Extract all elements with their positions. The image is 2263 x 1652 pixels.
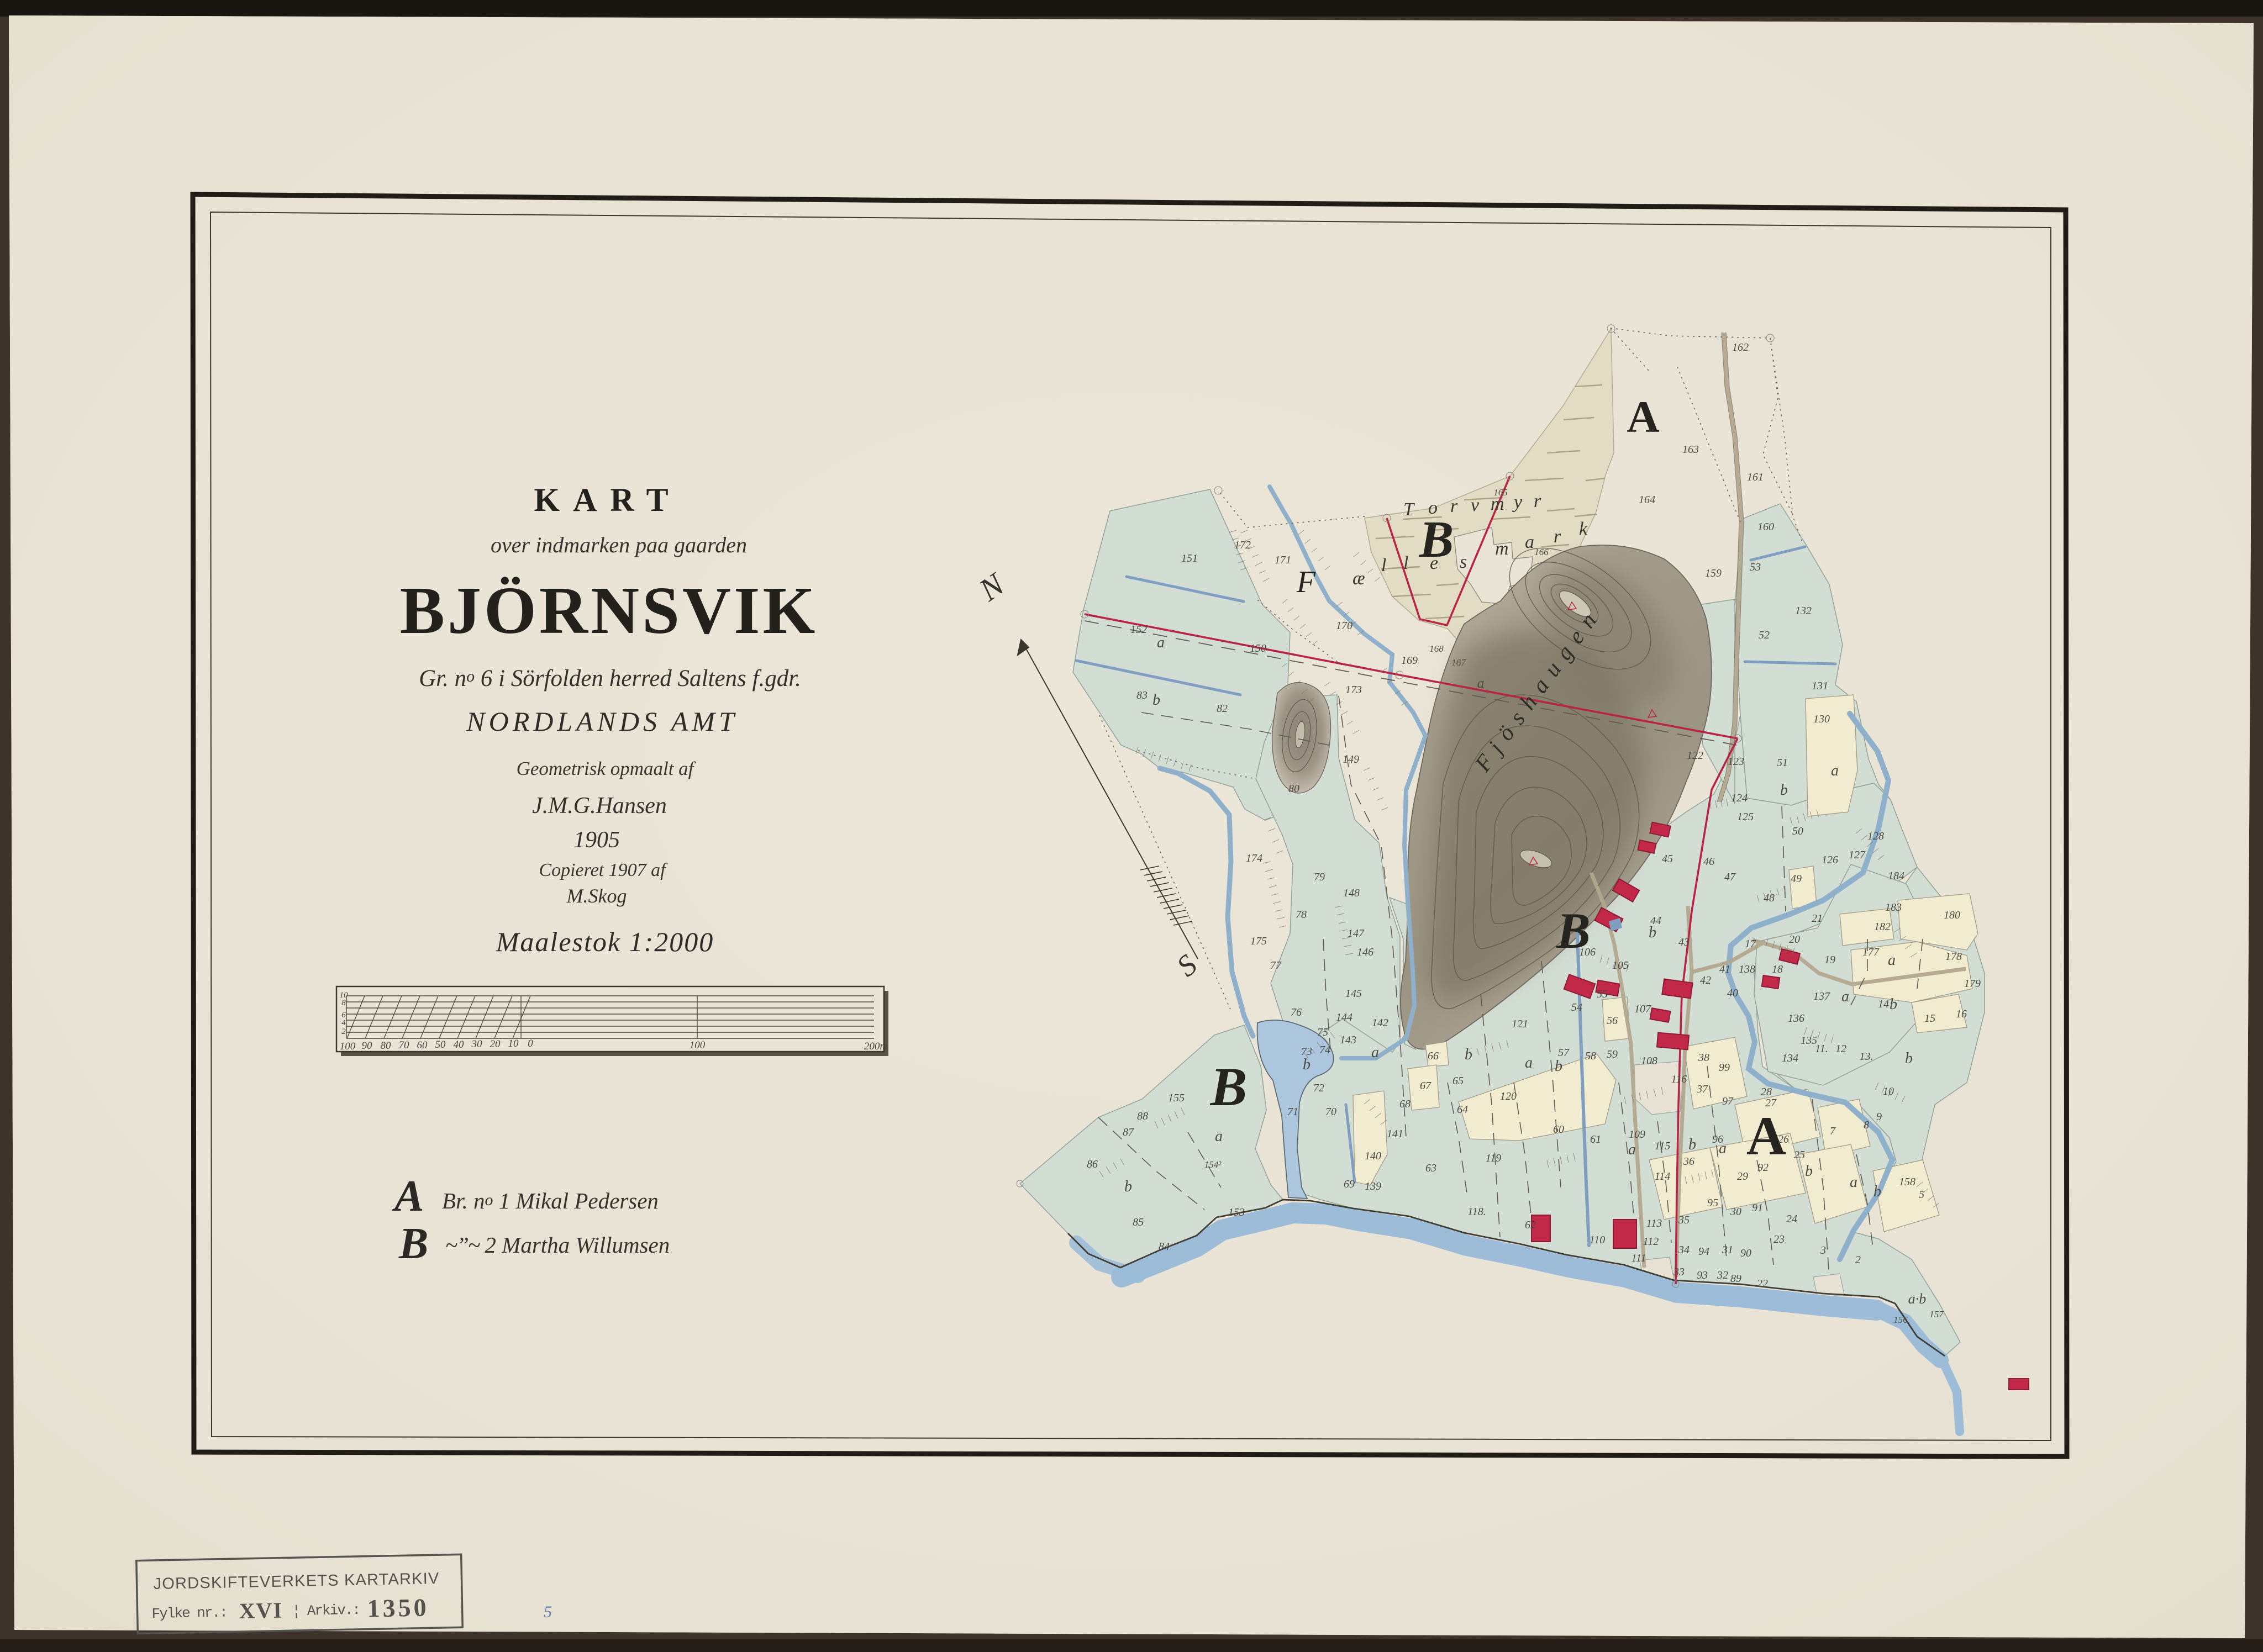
svg-text:50: 50 <box>435 1039 446 1051</box>
svg-text:128: 128 <box>1867 830 1884 842</box>
svg-text:132: 132 <box>1795 605 1812 617</box>
svg-text:59: 59 <box>1607 1048 1618 1060</box>
svg-text:33: 33 <box>1673 1266 1685 1278</box>
svg-text:72: 72 <box>1313 1082 1324 1094</box>
svg-text:99: 99 <box>1719 1062 1730 1074</box>
svg-text:21: 21 <box>1812 912 1823 925</box>
svg-text:172: 172 <box>1234 539 1251 551</box>
svg-text:130: 130 <box>1813 713 1830 725</box>
svg-text:34: 34 <box>1678 1244 1690 1256</box>
svg-text:200m: 200m <box>864 1041 887 1052</box>
svg-text:62: 62 <box>1525 1219 1536 1231</box>
svg-text:40: 40 <box>1727 987 1738 999</box>
svg-text:F: F <box>1296 565 1316 599</box>
svg-text:NORDLANDS AMT: NORDLANDS AMT <box>466 706 738 737</box>
svg-text:a: a <box>1157 634 1165 651</box>
svg-text:100: 100 <box>340 1041 356 1052</box>
svg-text:T: T <box>1403 499 1415 520</box>
svg-text:67: 67 <box>1420 1080 1432 1092</box>
svg-text:163: 163 <box>1682 444 1699 456</box>
svg-text:a: a <box>1477 675 1485 691</box>
svg-text:a: a <box>1525 532 1534 552</box>
svg-text:b: b <box>1303 1056 1311 1073</box>
svg-text:10: 10 <box>508 1038 519 1049</box>
svg-text:146: 146 <box>1357 946 1373 958</box>
svg-text:95: 95 <box>1707 1197 1718 1209</box>
svg-text:8: 8 <box>341 999 346 1007</box>
svg-text:b: b <box>1905 1050 1913 1067</box>
svg-text:XVI: XVI <box>239 1598 283 1624</box>
svg-text:94: 94 <box>1698 1245 1709 1258</box>
svg-text:m: m <box>1495 539 1509 559</box>
svg-text:a: a <box>1850 1174 1857 1191</box>
svg-text:161: 161 <box>1747 471 1764 483</box>
svg-text:a: a <box>1841 988 1849 1005</box>
svg-text:20: 20 <box>490 1038 501 1050</box>
svg-text:30: 30 <box>471 1038 483 1050</box>
svg-text:119: 119 <box>1486 1152 1502 1164</box>
svg-text:17: 17 <box>1745 938 1756 950</box>
svg-text:b: b <box>1555 1058 1562 1075</box>
svg-text:131: 131 <box>1812 680 1828 692</box>
svg-text:r: r <box>1554 526 1561 547</box>
svg-text:b: b <box>1805 1163 1813 1180</box>
svg-text:121: 121 <box>1512 1018 1528 1030</box>
svg-text:75: 75 <box>1317 1026 1328 1038</box>
svg-text:3: 3 <box>1820 1244 1826 1257</box>
svg-text:7: 7 <box>1830 1125 1836 1137</box>
svg-text:116: 116 <box>1671 1073 1687 1085</box>
svg-text:100: 100 <box>690 1039 706 1051</box>
svg-text:157: 157 <box>1929 1309 1944 1320</box>
svg-text:179: 179 <box>1964 978 1981 990</box>
svg-text:20: 20 <box>1789 933 1800 946</box>
svg-text:154²: 154² <box>1204 1159 1222 1170</box>
svg-text:177: 177 <box>1862 946 1880 958</box>
svg-text:r: r <box>1534 491 1541 511</box>
svg-text:over indmarken paa gaarden: over indmarken paa gaarden <box>491 532 747 557</box>
svg-text:2: 2 <box>1855 1254 1861 1266</box>
svg-text:29: 29 <box>1737 1170 1748 1183</box>
svg-text:46: 46 <box>1703 856 1714 868</box>
svg-text:26: 26 <box>1778 1133 1789 1146</box>
svg-text:114: 114 <box>1655 1170 1671 1183</box>
svg-text:150: 150 <box>1250 642 1266 655</box>
svg-text:136: 136 <box>1788 1012 1804 1025</box>
svg-text:106: 106 <box>1579 946 1596 958</box>
svg-text:1350: 1350 <box>367 1593 429 1622</box>
svg-text:60: 60 <box>417 1039 428 1051</box>
svg-text:126: 126 <box>1822 854 1838 866</box>
svg-text:148: 148 <box>1343 887 1360 899</box>
svg-text:182: 182 <box>1874 921 1891 933</box>
svg-text:109: 109 <box>1629 1128 1645 1141</box>
svg-text:b: b <box>1465 1046 1472 1063</box>
svg-text:89: 89 <box>1730 1273 1741 1285</box>
svg-text:Gr. no 6 i Sörfolden herred Sa: Gr. no 6 i Sörfolden herred Saltens f.gd… <box>419 666 801 692</box>
svg-text:90: 90 <box>1740 1247 1751 1259</box>
svg-text:139: 139 <box>1365 1180 1381 1192</box>
svg-text:54: 54 <box>1571 1001 1582 1014</box>
svg-text:153: 153 <box>1228 1206 1245 1218</box>
svg-text:¦ Arkiv.:: ¦ Arkiv.: <box>292 1602 360 1619</box>
svg-text:15: 15 <box>1924 1012 1935 1025</box>
svg-text:25: 25 <box>1794 1149 1805 1161</box>
svg-text:KART: KART <box>534 482 681 518</box>
svg-text:110: 110 <box>1590 1234 1606 1246</box>
svg-text:23: 23 <box>1773 1233 1785 1245</box>
svg-text:0: 0 <box>528 1038 533 1049</box>
svg-text:138: 138 <box>1739 963 1755 975</box>
svg-text:a·b: a·b <box>1908 1291 1927 1307</box>
svg-text:BJÖRNSVIK: BJÖRNSVIK <box>400 573 818 648</box>
svg-text:159: 159 <box>1705 567 1722 579</box>
svg-text:70: 70 <box>399 1039 410 1051</box>
svg-text:71: 71 <box>1287 1106 1298 1118</box>
svg-text:170: 170 <box>1336 620 1352 632</box>
svg-text:2: 2 <box>341 1027 346 1036</box>
svg-text:180: 180 <box>1944 909 1960 921</box>
svg-text:a: a <box>1831 762 1839 779</box>
svg-text:151: 151 <box>1181 552 1198 564</box>
svg-text:Fylke nr.:: Fylke nr.: <box>151 1604 227 1622</box>
svg-text:31: 31 <box>1722 1244 1733 1256</box>
svg-text:76: 76 <box>1291 1006 1302 1018</box>
svg-text:91: 91 <box>1752 1202 1763 1214</box>
svg-text:164: 164 <box>1639 494 1655 506</box>
svg-text:58: 58 <box>1585 1050 1596 1062</box>
svg-text:53: 53 <box>1750 561 1761 573</box>
svg-text:32: 32 <box>1717 1269 1728 1281</box>
svg-text:1905: 1905 <box>573 827 620 853</box>
svg-text:Maalestok 1:2000: Maalestok 1:2000 <box>496 926 714 957</box>
svg-text:77: 77 <box>1270 959 1282 972</box>
svg-text:5: 5 <box>544 1603 552 1621</box>
svg-text:125: 125 <box>1737 811 1754 823</box>
svg-text:47: 47 <box>1724 871 1736 883</box>
svg-text:l: l <box>1381 555 1386 576</box>
svg-text:B: B <box>1210 1056 1248 1117</box>
svg-text:118.: 118. <box>1467 1206 1486 1218</box>
svg-text:4: 4 <box>341 1018 346 1027</box>
svg-text:19: 19 <box>1824 954 1835 966</box>
svg-text:69: 69 <box>1344 1178 1355 1190</box>
svg-text:145: 145 <box>1345 988 1362 1000</box>
svg-text:167: 167 <box>1451 657 1466 668</box>
svg-text:45: 45 <box>1662 853 1673 865</box>
svg-text:79: 79 <box>1314 871 1325 883</box>
svg-text:v: v <box>1471 495 1480 515</box>
svg-text:b: b <box>1124 1178 1132 1195</box>
svg-text:92: 92 <box>1757 1162 1769 1174</box>
svg-text:a: a <box>1215 1128 1223 1145</box>
svg-text:a: a <box>1888 952 1896 969</box>
svg-text:162: 162 <box>1732 341 1749 353</box>
svg-text:36: 36 <box>1683 1155 1694 1168</box>
svg-text:51: 51 <box>1777 757 1788 769</box>
svg-text:A: A <box>392 1172 424 1221</box>
svg-text:b: b <box>1780 782 1788 799</box>
svg-text:115: 115 <box>1655 1140 1671 1152</box>
svg-text:141: 141 <box>1387 1128 1403 1140</box>
svg-text:28: 28 <box>1761 1086 1772 1098</box>
svg-text:43: 43 <box>1678 936 1690 948</box>
svg-text:158: 158 <box>1899 1176 1915 1188</box>
svg-text:k: k <box>1579 519 1588 539</box>
svg-text:183: 183 <box>1885 901 1902 914</box>
svg-text:66: 66 <box>1428 1050 1439 1062</box>
svg-text:l: l <box>1403 553 1408 573</box>
svg-text:88: 88 <box>1137 1110 1148 1122</box>
svg-text:5: 5 <box>1919 1189 1924 1201</box>
svg-text:152: 152 <box>1130 624 1147 636</box>
svg-text:r: r <box>1450 496 1458 516</box>
svg-text:80: 80 <box>381 1040 392 1052</box>
svg-text:8: 8 <box>1864 1119 1869 1131</box>
svg-text:J.M.G.Hansen: J.M.G.Hansen <box>532 793 667 819</box>
svg-text:175: 175 <box>1250 935 1267 947</box>
svg-text:9: 9 <box>1876 1111 1882 1123</box>
svg-text:57: 57 <box>1558 1047 1570 1059</box>
svg-text:49: 49 <box>1791 873 1802 885</box>
svg-text:144: 144 <box>1336 1011 1352 1023</box>
svg-text:156: 156 <box>1893 1315 1908 1325</box>
svg-text:63: 63 <box>1425 1162 1436 1174</box>
svg-text:b: b <box>1152 692 1160 709</box>
svg-text:Copieret 1907 af: Copieret 1907 af <box>539 860 668 880</box>
svg-text:78: 78 <box>1296 909 1307 921</box>
svg-text:184: 184 <box>1888 870 1904 882</box>
svg-text:74: 74 <box>1319 1044 1330 1056</box>
svg-text:41: 41 <box>1719 963 1730 975</box>
svg-text:14: 14 <box>1878 998 1889 1010</box>
svg-text:M.Skog: M.Skog <box>566 885 627 907</box>
svg-text:12: 12 <box>1835 1043 1846 1055</box>
svg-text:82: 82 <box>1217 703 1228 715</box>
svg-text:147: 147 <box>1348 927 1365 940</box>
svg-text:27: 27 <box>1765 1097 1777 1109</box>
svg-text:e: e <box>1430 553 1438 573</box>
svg-text:160: 160 <box>1757 521 1774 533</box>
svg-text:Br. no 1 Mikal Pedersen: Br. no 1 Mikal Pedersen <box>442 1188 659 1213</box>
svg-text:149: 149 <box>1343 753 1359 766</box>
svg-text:171: 171 <box>1275 554 1291 566</box>
svg-text:b: b <box>1688 1136 1696 1153</box>
svg-text:11.: 11. <box>1815 1043 1828 1055</box>
svg-text:18: 18 <box>1772 963 1783 975</box>
svg-text:108: 108 <box>1641 1055 1657 1067</box>
svg-text:35: 35 <box>1678 1214 1690 1226</box>
svg-text:55: 55 <box>1597 988 1608 1000</box>
svg-text:s: s <box>1460 552 1467 572</box>
svg-text:87: 87 <box>1123 1126 1134 1138</box>
svg-text:83: 83 <box>1136 689 1148 701</box>
svg-text:a: a <box>1371 1044 1379 1061</box>
svg-text:o: o <box>1428 498 1438 518</box>
svg-text:140: 140 <box>1365 1150 1381 1162</box>
svg-text:122: 122 <box>1687 750 1703 762</box>
svg-text:84: 84 <box>1159 1241 1170 1253</box>
svg-text:86: 86 <box>1087 1158 1098 1170</box>
svg-text:65: 65 <box>1452 1075 1464 1087</box>
svg-text:169: 169 <box>1401 655 1418 667</box>
svg-text:97: 97 <box>1722 1095 1734 1107</box>
svg-text:105: 105 <box>1612 959 1629 972</box>
svg-text:123: 123 <box>1728 756 1744 768</box>
svg-text:85: 85 <box>1133 1216 1144 1228</box>
svg-text:~”~ 2 Martha Willumsen: ~”~ 2 Martha Willumsen <box>445 1232 670 1258</box>
svg-text:173: 173 <box>1345 684 1362 696</box>
svg-text:134: 134 <box>1782 1052 1798 1064</box>
svg-text:70: 70 <box>1325 1106 1336 1118</box>
svg-text:61: 61 <box>1590 1133 1601 1146</box>
svg-text:22: 22 <box>1757 1278 1768 1290</box>
svg-text:120: 120 <box>1500 1090 1517 1102</box>
svg-text:166: 166 <box>1534 547 1549 557</box>
svg-text:y: y <box>1512 492 1523 513</box>
svg-text:b: b <box>1890 996 1897 1013</box>
svg-text:64: 64 <box>1457 1104 1468 1116</box>
svg-text:13.: 13. <box>1860 1051 1873 1063</box>
svg-text:137: 137 <box>1813 990 1830 1002</box>
svg-text:143: 143 <box>1340 1034 1356 1046</box>
svg-text:A: A <box>1627 392 1659 442</box>
svg-text:æ: æ <box>1352 568 1365 589</box>
svg-text:112: 112 <box>1643 1236 1659 1248</box>
svg-text:24: 24 <box>1786 1213 1797 1225</box>
svg-text:a: a <box>1628 1141 1636 1158</box>
svg-text:96: 96 <box>1712 1133 1723 1146</box>
svg-text:107: 107 <box>1634 1003 1651 1015</box>
svg-text:93: 93 <box>1697 1269 1708 1281</box>
svg-text:40: 40 <box>454 1039 465 1051</box>
svg-text:127: 127 <box>1849 849 1866 861</box>
svg-text:52: 52 <box>1759 629 1770 641</box>
svg-text:Geometrisk opmaalt af: Geometrisk opmaalt af <box>517 758 696 779</box>
svg-text:80: 80 <box>1288 783 1299 795</box>
svg-text:38: 38 <box>1698 1052 1709 1064</box>
svg-text:165: 165 <box>1493 487 1508 498</box>
svg-text:168: 168 <box>1429 643 1444 654</box>
svg-text:50: 50 <box>1792 825 1803 837</box>
svg-text:178: 178 <box>1945 951 1962 963</box>
svg-text:111: 111 <box>1631 1252 1646 1264</box>
svg-text:B: B <box>398 1220 428 1268</box>
svg-text:124: 124 <box>1731 792 1748 804</box>
svg-text:60: 60 <box>1553 1123 1564 1136</box>
svg-text:56: 56 <box>1607 1015 1618 1027</box>
svg-text:90: 90 <box>362 1040 373 1052</box>
svg-text:155: 155 <box>1168 1092 1185 1104</box>
svg-text:174: 174 <box>1246 852 1262 864</box>
svg-text:113: 113 <box>1646 1217 1662 1229</box>
svg-text:16: 16 <box>1956 1008 1967 1020</box>
svg-text:30: 30 <box>1730 1206 1741 1218</box>
svg-text:68: 68 <box>1399 1098 1411 1110</box>
svg-text:b: b <box>1873 1183 1881 1200</box>
svg-text:42: 42 <box>1700 974 1711 986</box>
svg-text:37: 37 <box>1696 1083 1708 1095</box>
svg-text:44: 44 <box>1650 915 1661 927</box>
svg-text:a: a <box>1525 1054 1533 1072</box>
svg-text:142: 142 <box>1372 1017 1388 1029</box>
